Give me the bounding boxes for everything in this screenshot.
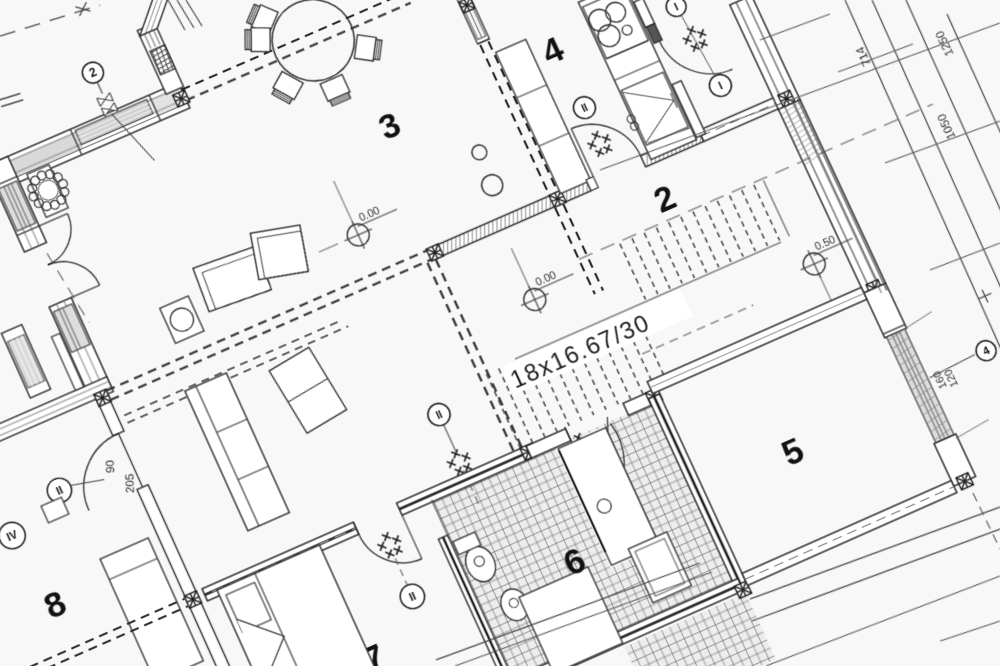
svg-text:18x16.67/30: 18x16.67/30 — [506, 309, 654, 394]
svg-text:1050: 1050 — [934, 111, 958, 141]
svg-text:205: 205 — [124, 474, 137, 494]
svg-text:8: 8 — [38, 583, 72, 627]
svg-text:5: 5 — [776, 430, 810, 474]
svg-text:3: 3 — [373, 105, 407, 148]
svg-text:90: 90 — [105, 460, 118, 473]
svg-text:2: 2 — [648, 177, 682, 221]
svg-text:4: 4 — [536, 29, 571, 72]
